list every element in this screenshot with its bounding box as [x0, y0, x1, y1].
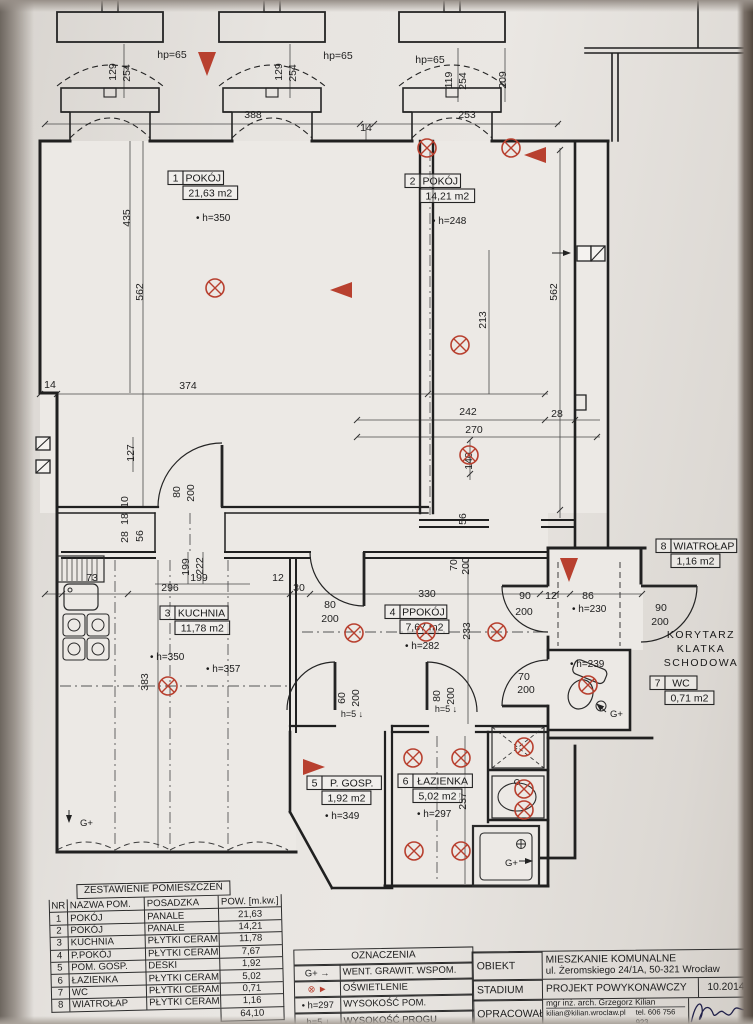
room-number: 5 [312, 778, 318, 790]
legend-rows: G+ →WENT. GRAWIT. WSPOM.⊗ ►OŚWIETLENIE• … [295, 961, 474, 1024]
dimension-label: 70 [518, 671, 530, 683]
room-height-label: • h=239 [570, 659, 605, 670]
dimension-label: 200 [185, 484, 197, 502]
room-area: 14,21 m2 [425, 191, 469, 203]
room-height-label: • h=350 [150, 652, 185, 663]
summary-cell: 5 [51, 961, 69, 974]
threshold-label: h=5 ↓ [341, 709, 363, 719]
dimension-label: 253 [458, 109, 476, 121]
dimension-label: 12 [545, 590, 557, 602]
summary-cell: 4 [51, 949, 69, 962]
room-height-label: • h=297 [417, 809, 452, 820]
window-2 [219, 0, 325, 141]
dimension-label: 86 [582, 590, 594, 602]
legend-symbol: G+ → [295, 964, 341, 980]
dimension-label: 374 [179, 380, 197, 392]
photo-bottom-edge [0, 1016, 753, 1024]
room-number: 2 [410, 176, 416, 188]
stadium-label: STADIUM [473, 980, 543, 1000]
obiekt-value: MIESZKANIE KOMUNALNE ul. Żeromskiego 24/… [543, 952, 753, 976]
room-name: WIATROŁAP [673, 541, 734, 553]
room-number: 8 [661, 541, 667, 553]
legend-row: ⊗ ►OŚWIETLENIE [295, 977, 473, 996]
dimension-label: 129 [273, 63, 285, 81]
room-area: 1,16 m2 [676, 556, 714, 568]
legend-text: WENT. GRAWIT. WSPOM. [341, 962, 473, 979]
photo-right-edge [737, 0, 753, 1024]
dimension-label: 28 [551, 408, 563, 420]
dimension-label: 562 [134, 283, 146, 301]
dimension-label: 383 [139, 673, 151, 691]
room-name: P. GOSP. [330, 778, 373, 790]
obiekt-line2: ul. Żeromskiego 24/1A, 50-321 Wrocław [546, 963, 750, 976]
dimension-label: 200 [515, 606, 533, 618]
corridor-label: KORYTARZ [667, 629, 735, 641]
dimension-label: 14 [44, 379, 56, 391]
dimension-label: 254 [121, 64, 133, 82]
room-area: 1,92 m2 [327, 793, 365, 805]
legend-symbol: ⊗ ► [295, 980, 341, 996]
dimension-label: 388 [244, 109, 262, 121]
room-area: 5,02 m2 [418, 791, 456, 803]
dimension-label: 200 [460, 557, 472, 575]
summary-grid: NRNAZWA POM.POSADZKAPOW. [m.kw.]1POKÓJPA… [49, 894, 285, 1012]
summary-cell: WIATROŁAP [70, 997, 147, 1011]
vent-triangle-symbol [198, 52, 216, 76]
dimension-label: 200 [350, 689, 362, 707]
dimension-label: 330 [418, 588, 436, 600]
dimension-label: 254 [287, 64, 299, 82]
gplus-label: G+ [505, 858, 518, 869]
dimension-label: 270 [465, 424, 483, 436]
dimension-label: 30 [293, 582, 305, 594]
dimension-label: 200 [651, 616, 669, 628]
room-height-label: • h=349 [325, 811, 360, 822]
dimension-label: 119 [443, 71, 455, 88]
gplus-label: G+ [80, 818, 93, 829]
dimension-label: 199 [190, 572, 208, 584]
room-number: 7 [655, 678, 661, 690]
dimension-label: 80 [431, 690, 443, 702]
room-height-label: • h=248 [432, 216, 467, 227]
room-name: PPOKÓJ [402, 606, 445, 619]
dimension-label: hp=65 [157, 49, 187, 61]
dimension-label: 10 [119, 496, 131, 508]
gplus-label: G+ [610, 709, 623, 720]
room-height-label: • h=357 [206, 664, 241, 675]
dimension-label: 90 [519, 590, 531, 602]
photo-top-edge [0, 0, 753, 12]
dimension-label: 73 [86, 572, 98, 584]
corridor-label: SCHODOWA [664, 657, 739, 669]
room-height-label: • h=282 [405, 641, 440, 652]
room-name: ŁAZIENKA [417, 776, 468, 788]
floor-plan-svg: 129254hp=65129254hp=65hp=651192543881425… [0, 0, 753, 1024]
room-name: POKÓJ [422, 175, 458, 188]
photo-left-edge [0, 0, 34, 1024]
room-number: 1 [173, 173, 179, 185]
legend-table: OZNACZENIA G+ →WENT. GRAWIT. WSPOM.⊗ ►OŚ… [293, 946, 474, 1024]
corridor-label: KLATKA [677, 643, 726, 655]
room-height-label: • h=350 [196, 213, 231, 224]
dimension-label: 80 [171, 486, 183, 498]
scanned-floor-plan-photo: 129254hp=65129254hp=65hp=651192543881425… [0, 0, 753, 1024]
summary-cell: 2 [50, 924, 68, 937]
dimension-label: 200 [321, 613, 339, 625]
dimension-label: hp=65 [415, 54, 445, 66]
summary-cell: 3 [51, 937, 69, 950]
obiekt-label: OBIEKT [473, 952, 543, 980]
threshold-label: h=5 ↓ [435, 704, 457, 714]
dimension-label: 80 [324, 599, 336, 611]
dimension-label: 90 [655, 602, 667, 614]
dimension-label: 70 [448, 559, 460, 571]
dimension-label: 200 [517, 684, 535, 696]
room-area: 0,71 m2 [670, 693, 708, 705]
summary-cell: PŁYTKI CERAM. [147, 995, 221, 1009]
title-block: OBIEKT MIESZKANIE KOMUNALNE ul. Żeromski… [472, 949, 753, 1024]
summary-header-cell: NR [50, 899, 68, 912]
room-area: 21,63 m2 [188, 188, 232, 200]
dimension-label: 213 [477, 311, 489, 329]
summary-cell: 1,16 [221, 993, 283, 1007]
room-area: 11,78 m2 [181, 623, 224, 635]
dimension-label: 60 [336, 692, 348, 704]
vent-icon [577, 246, 591, 261]
dimension-label: 127 [125, 444, 137, 462]
dimension-label: 242 [459, 406, 477, 418]
room-number: 4 [390, 607, 396, 619]
room-height-label: • h=230 [572, 604, 607, 615]
dimension-label: 254 [457, 72, 469, 90]
summary-cell: 1 [50, 912, 68, 925]
dimension-label: 562 [548, 283, 560, 301]
dimension-label: 209 [497, 71, 509, 89]
legend-text: OŚWIETLENIE [341, 978, 473, 995]
dimension-label: 200 [445, 687, 457, 705]
summary-cell: 8 [52, 998, 70, 1011]
dimension-label: hp=65 [323, 50, 353, 62]
window-3 [399, 0, 505, 141]
dimension-label: 18 [119, 513, 131, 525]
legend-text: WYSOKOŚĆ POM. [341, 994, 473, 1011]
legend-symbol: • h=297 [295, 997, 341, 1013]
dimension-label: 12 [272, 572, 284, 584]
room-number: 6 [403, 776, 409, 788]
legend-row: • h=297WYSOKOŚĆ POM. [295, 993, 473, 1012]
summary-cell: 7 [52, 986, 70, 999]
dimension-label: 28 [119, 531, 131, 543]
dimension-label: 129 [107, 63, 119, 81]
dimension-label: 14 [360, 122, 372, 134]
summary-cell: 6 [52, 974, 70, 987]
legend-row: G+ →WENT. GRAWIT. WSPOM. [295, 961, 473, 980]
room-name: WC [672, 678, 690, 690]
dimension-label: 56 [457, 513, 469, 525]
room-name: KUCHNIA [178, 608, 225, 620]
room-summary-table: ZESTAWIENIE POMIESZCZEŃ NRNAZWA POM.POSA… [48, 879, 284, 1024]
dimension-label: 435 [121, 209, 133, 227]
stadium-value: PROJEKT POWYKONAWCZY [543, 982, 698, 995]
room-number: 3 [165, 608, 171, 620]
dimension-label: 296 [161, 582, 179, 594]
dimension-label: 56 [134, 530, 146, 542]
dimension-label: 233 [461, 622, 473, 640]
room-name: POKÓJ [185, 172, 221, 185]
